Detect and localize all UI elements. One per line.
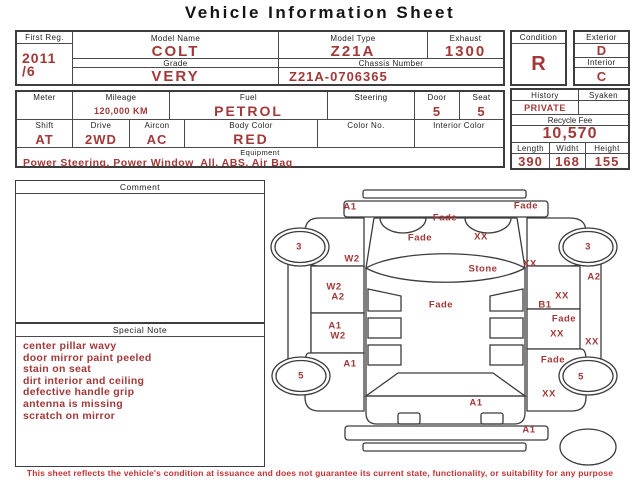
body-color-label: Body Color	[185, 120, 318, 131]
interior-value: C	[575, 68, 628, 84]
interior-color-value	[415, 131, 503, 147]
equipment-section: Equipment Power Steering, Power Window A…	[17, 148, 503, 168]
exterior-interior-box: Exterior D Interior C	[573, 30, 630, 86]
syaken-value	[579, 101, 628, 114]
condition-value: R	[512, 44, 565, 84]
recycle-fee-value: 10,570	[512, 126, 628, 143]
first-reg-value: 2011 /6	[17, 44, 73, 85]
chassis-number-value: Z21A-0706365	[279, 68, 503, 85]
exterior-value: D	[575, 44, 628, 58]
special-note-line: center pillar wavy	[23, 341, 264, 353]
damage-mark-front-bumper-right: Fade	[514, 201, 538, 212]
length-value: 390	[512, 154, 550, 169]
height-label: Height	[586, 143, 628, 154]
damage-mark-left-front-door-2: A2	[331, 292, 344, 303]
chassis-number-label: Chassis Number	[279, 58, 503, 68]
damage-mark-rear-bumper-right: A1	[522, 425, 535, 436]
dimensions-row: Length Widht Height 390 168 155	[512, 143, 628, 169]
detail-row-1: Meter Mileage Fuel Steering Door Seat 12…	[17, 92, 503, 120]
damage-mark-left-rear-door-2: W2	[330, 331, 345, 342]
history-value: PRIVATE	[512, 101, 579, 114]
page-title: Vehicle Information Sheet	[0, 3, 640, 23]
damage-mark-windshield: Stone	[469, 264, 498, 275]
door-value: 5	[415, 103, 460, 119]
damage-mark-right-front-fender: A2	[587, 272, 600, 283]
color-no-label: Color No.	[318, 120, 415, 131]
damage-mark-right-front-door-2: B1	[538, 300, 551, 311]
grade-label: Grade	[73, 58, 279, 68]
comment-box: Comment	[15, 180, 265, 323]
condition-box: Condition R	[510, 30, 567, 86]
first-reg-label: First Reg.	[17, 32, 73, 44]
length-label: Length	[512, 143, 550, 154]
first-reg-month: /6	[22, 65, 36, 78]
special-note-line: antenna is missing	[23, 399, 264, 411]
history-label: History	[512, 90, 579, 101]
special-note-header: Special Note	[16, 324, 264, 337]
widht-value: 168	[550, 154, 586, 169]
damage-mark-left-front-wheel: 3	[296, 242, 302, 253]
damage-mark-right-front-wheel: 3	[585, 242, 591, 253]
car-diagram-svg	[268, 186, 640, 470]
model-type-value: Z21A	[279, 44, 428, 58]
summary-table: First Reg. 2011 /6 Model Name COLT Grade…	[15, 30, 505, 86]
meter-value	[17, 103, 73, 119]
condition-label: Condition	[512, 32, 565, 44]
damage-mark-right-front-door-1: XX	[555, 291, 569, 302]
interior-color-label: Interior Color	[415, 120, 503, 131]
detail-row-2: Shift Drive Aircon Body Color Color No. …	[17, 120, 503, 148]
interior-label: Interior	[575, 58, 628, 68]
equipment-value: Power Steering, Power Window All, ABS, A…	[17, 157, 503, 168]
seat-label: Seat	[460, 92, 503, 103]
damage-mark-left-rear-wheel: 5	[298, 371, 304, 382]
exhaust-value: 1300	[428, 44, 503, 58]
mileage-label: Mileage	[73, 92, 170, 103]
damage-mark-right-rear-fender-2: XX	[542, 389, 556, 400]
special-note-line: scratch on mirror	[23, 411, 264, 423]
fuel-value: PETROL	[170, 103, 328, 119]
spare-tire	[560, 429, 616, 465]
disclaimer: This sheet reflects the vehicle's condit…	[0, 468, 640, 478]
aircon-value: AC	[130, 131, 185, 147]
syaken-label: Syaken	[579, 90, 628, 101]
damage-mark-left-a-pillar: W2	[344, 254, 359, 265]
damage-mark-roof: Fade	[429, 300, 453, 311]
seat-value: 5	[460, 103, 503, 119]
car-damage-diagram: A1FadeFadeFadeXXW2XXStone33A2W2A2XXB1Fad…	[268, 186, 640, 470]
shift-value: AT	[17, 131, 73, 147]
special-note-lines: center pillar wavydoor mirror paint peel…	[16, 337, 264, 422]
damage-mark-right-a-pillar: XX	[523, 259, 537, 270]
comment-header: Comment	[16, 181, 264, 194]
damage-mark-right-rear-wheel: 5	[578, 372, 584, 383]
damage-mark-front-bumper-left: A1	[343, 202, 356, 213]
color-no-value	[318, 131, 415, 147]
damage-mark-hood-right: XX	[474, 232, 488, 243]
comment-body	[16, 194, 264, 198]
damage-mark-tailgate: A1	[469, 398, 482, 409]
damage-mark-hood-front-center: Fade	[433, 213, 457, 224]
widht-label: Widht	[550, 143, 586, 154]
center-body	[344, 190, 548, 451]
damage-mark-hood-left: Fade	[408, 233, 432, 244]
detail-table: Meter Mileage Fuel Steering Door Seat 12…	[15, 90, 505, 168]
history-row: History Syaken PRIVATE	[512, 90, 628, 115]
damage-mark-right-rear-door-2: XX	[550, 329, 564, 340]
door-label: Door	[415, 92, 460, 103]
fuel-label: Fuel	[170, 92, 328, 103]
height-value: 155	[586, 154, 628, 169]
mileage-value: 120,000 KM	[73, 103, 170, 119]
damage-mark-right-rear-fender-1: Fade	[541, 355, 565, 366]
body-color-value: RED	[185, 131, 318, 147]
damage-mark-right-rear-door-1: Fade	[552, 314, 576, 325]
history-table: History Syaken PRIVATE Recycle Fee 10,57…	[510, 88, 630, 170]
steering-label: Steering	[328, 92, 415, 103]
damage-mark-left-rear-fender: A1	[343, 359, 356, 370]
model-name-value: COLT	[73, 44, 279, 58]
vehicle-information-sheet: Vehicle Information Sheet First Reg. 201…	[0, 0, 640, 480]
shift-label: Shift	[17, 120, 73, 131]
aircon-label: Aircon	[130, 120, 185, 131]
steering-value	[328, 103, 415, 119]
drive-value: 2WD	[73, 131, 130, 147]
grade-value: VERY	[73, 68, 279, 85]
drive-label: Drive	[73, 120, 130, 131]
damage-mark-right-sill: XX	[585, 337, 599, 348]
special-note-box: Special Note center pillar wavydoor mirr…	[15, 323, 265, 467]
meter-label: Meter	[17, 92, 73, 103]
